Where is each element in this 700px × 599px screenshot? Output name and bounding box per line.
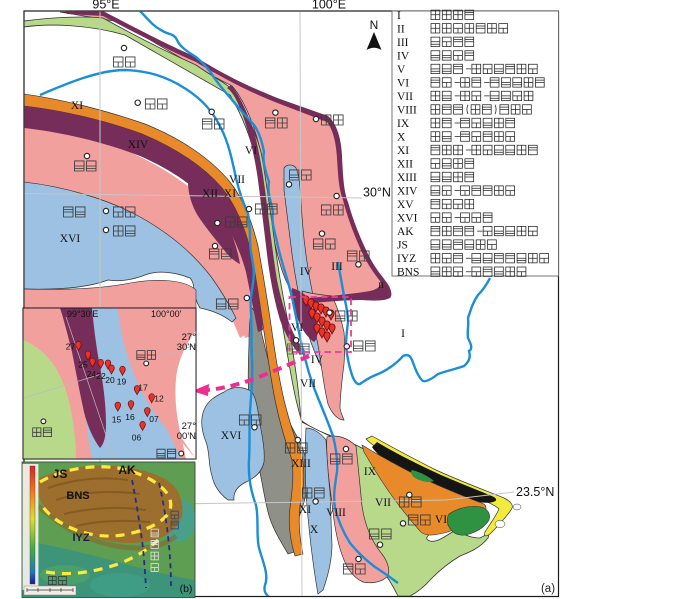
svg-text:27: 27 <box>66 342 76 352</box>
svg-text:XIV: XIV <box>397 186 418 198</box>
svg-text:XI: XI <box>299 504 311 516</box>
svg-text:(a): (a) <box>541 583 555 595</box>
svg-text:XII: XII <box>202 188 218 200</box>
svg-text:19: 19 <box>117 377 127 387</box>
svg-text:XIV: XIV <box>128 139 149 151</box>
svg-text:VIII: VIII <box>397 104 417 116</box>
svg-text:VI: VI <box>397 77 409 89</box>
svg-text:IYZ: IYZ <box>72 532 89 544</box>
svg-text:I: I <box>397 10 401 22</box>
svg-text:XII: XII <box>397 159 413 171</box>
svg-text:99°30'E: 99°30'E <box>67 309 98 319</box>
svg-text:XVI: XVI <box>60 233 81 245</box>
svg-text:I: I <box>401 328 405 340</box>
svg-text:16: 16 <box>125 412 135 422</box>
svg-text:VII: VII <box>397 91 413 103</box>
svg-text:XIII: XIII <box>397 172 417 184</box>
svg-text:XIII: XIII <box>291 458 311 470</box>
svg-text:VII: VII <box>300 378 316 390</box>
svg-text:20: 20 <box>105 375 115 385</box>
svg-text:N: N <box>370 18 379 32</box>
svg-text:100°E: 100°E <box>312 0 346 12</box>
svg-text:II: II <box>378 280 384 290</box>
svg-text:IX: IX <box>397 118 410 130</box>
svg-text:XV: XV <box>397 199 414 211</box>
svg-text:VI: VI <box>435 514 447 526</box>
svg-text:XVI: XVI <box>221 430 242 442</box>
svg-text:JS: JS <box>397 240 408 252</box>
svg-text:BNS: BNS <box>66 490 89 502</box>
svg-text:XI: XI <box>397 145 409 157</box>
svg-text:IV: IV <box>311 354 324 366</box>
svg-text:(b): (b) <box>180 583 193 595</box>
svg-text:X: X <box>397 131 406 143</box>
svg-text:06: 06 <box>132 432 142 442</box>
svg-text:XVI: XVI <box>397 213 418 225</box>
svg-text:VII: VII <box>229 174 245 186</box>
svg-text:24: 24 <box>87 369 97 379</box>
svg-text:30°N: 30°N <box>363 186 391 200</box>
svg-text:100°00': 100°00' <box>151 309 182 319</box>
svg-text:IV: IV <box>397 50 410 62</box>
svg-text:VII: VII <box>375 497 391 509</box>
svg-text:30'N: 30'N <box>177 342 196 353</box>
svg-text:AK: AK <box>118 463 136 477</box>
svg-text:IYZ: IYZ <box>397 253 416 265</box>
svg-text:XI: XI <box>71 100 83 112</box>
svg-text:BNS: BNS <box>397 267 419 279</box>
svg-text:AK: AK <box>397 226 414 238</box>
svg-text:VIII: VIII <box>326 507 346 519</box>
svg-text:V: V <box>397 64 406 76</box>
svg-text:17: 17 <box>138 383 148 393</box>
svg-text:IX: IX <box>364 466 377 478</box>
svg-text:JS: JS <box>53 467 68 481</box>
svg-text:VI: VI <box>245 145 257 157</box>
svg-text:XI: XI <box>224 188 236 200</box>
svg-text:15: 15 <box>112 414 122 424</box>
svg-text:IV: IV <box>300 266 313 278</box>
svg-text:II: II <box>397 23 405 35</box>
svg-text:00'N: 00'N <box>177 431 196 442</box>
svg-text:X: X <box>310 524 319 536</box>
svg-text:07: 07 <box>149 414 159 424</box>
svg-text:25: 25 <box>78 359 88 369</box>
svg-text:III: III <box>331 261 343 273</box>
svg-text:III: III <box>397 37 409 49</box>
svg-text:VI: VI <box>291 322 303 334</box>
svg-text:95°E: 95°E <box>92 0 119 12</box>
svg-text:12: 12 <box>154 394 164 404</box>
svg-text:23.5°N: 23.5°N <box>516 485 554 499</box>
